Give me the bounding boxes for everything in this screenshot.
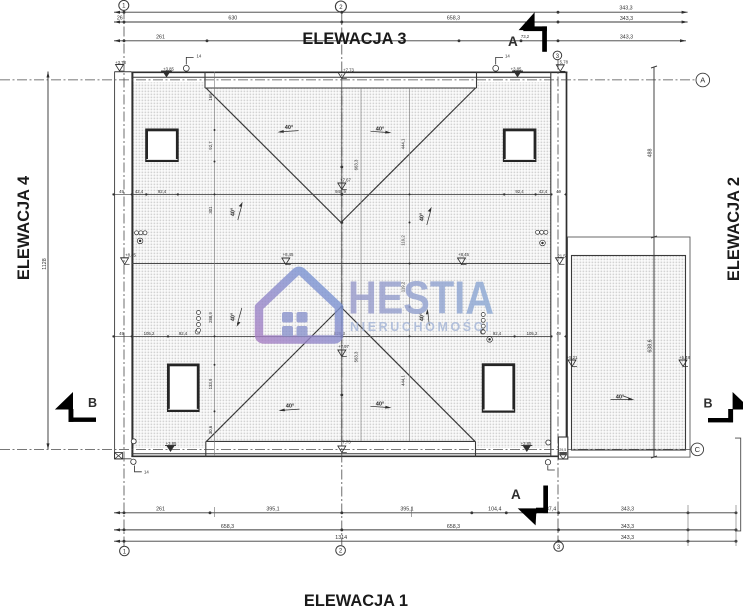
svg-text:288,9: 288,9	[208, 312, 213, 323]
svg-text:343,3: 343,3	[621, 524, 634, 530]
svg-text:ELEWACJA 4: ELEWACJA 4	[15, 175, 33, 280]
svg-text:1314: 1314	[335, 535, 347, 541]
svg-text:40°: 40°	[286, 404, 294, 410]
svg-text:A: A	[511, 487, 521, 502]
svg-text:+3,85: +3,85	[511, 66, 522, 71]
svg-text:+7,97: +7,97	[338, 344, 349, 349]
svg-text:658,3: 658,3	[221, 524, 234, 530]
svg-text:+7,73: +7,73	[343, 68, 354, 73]
svg-text:343,3: 343,3	[621, 507, 634, 513]
svg-text:948,9: 948,9	[335, 189, 346, 194]
svg-text:+3,85: +3,85	[163, 66, 174, 71]
svg-text:73,2: 73,2	[521, 34, 530, 39]
svg-text:630: 630	[228, 16, 237, 22]
svg-text:261: 261	[156, 507, 165, 513]
svg-text:B: B	[704, 397, 713, 411]
svg-text:92,4: 92,4	[158, 189, 167, 194]
svg-text:92,4: 92,4	[179, 331, 188, 336]
svg-text:92,7: 92,7	[208, 141, 213, 150]
svg-text:49: 49	[556, 331, 561, 336]
svg-text:92,4: 92,4	[493, 331, 502, 336]
svg-text:343,3: 343,3	[621, 535, 634, 541]
svg-text:104,4: 104,4	[488, 507, 501, 513]
svg-text:C: C	[695, 445, 701, 454]
svg-text:169: 169	[208, 93, 213, 101]
svg-text:42,4: 42,4	[539, 189, 548, 194]
svg-text:7,73: 7,73	[342, 440, 351, 445]
svg-text:444,1: 444,1	[401, 375, 406, 386]
svg-text:301: 301	[208, 206, 213, 214]
svg-text:5,78: 5,78	[560, 60, 569, 65]
svg-text:133,9: 133,9	[208, 378, 213, 389]
svg-text:40°: 40°	[231, 208, 237, 216]
svg-text:92,4: 92,4	[515, 189, 524, 194]
svg-text:40°: 40°	[231, 313, 237, 321]
svg-text:A: A	[700, 76, 705, 85]
svg-text:21,5: 21,5	[557, 254, 566, 259]
svg-text:343,3: 343,3	[620, 35, 633, 41]
svg-text:29,5: 29,5	[559, 448, 566, 452]
svg-text:+8,45: +8,45	[458, 252, 469, 257]
svg-text:343,3: 343,3	[620, 16, 633, 22]
svg-text:40°: 40°	[420, 213, 426, 221]
svg-text:395,1: 395,1	[266, 507, 279, 513]
svg-text:ELEWACJA 1: ELEWACJA 1	[304, 592, 408, 610]
svg-text:NIERUCHOMOŚCI: NIERUCHOMOŚCI	[350, 319, 491, 334]
svg-text:563,3: 563,3	[354, 351, 359, 362]
svg-text:+5,21: +5,21	[567, 355, 578, 360]
svg-text:261: 261	[156, 35, 165, 41]
svg-text:488: 488	[648, 149, 654, 158]
svg-text:658,3: 658,3	[447, 524, 460, 530]
svg-text:1128: 1128	[42, 258, 48, 269]
svg-text:658,3: 658,3	[447, 16, 460, 22]
svg-text:+3,78: +3,78	[115, 60, 126, 65]
svg-text:A: A	[508, 34, 518, 49]
svg-text:26: 26	[117, 16, 123, 22]
svg-text:+5,48: +5,48	[679, 355, 690, 360]
svg-text:49: 49	[119, 189, 124, 194]
svg-text:ELEWACJA 2: ELEWACJA 2	[725, 177, 743, 281]
svg-text:+3,85: +3,85	[521, 441, 532, 446]
svg-text:30,6: 30,6	[208, 425, 213, 434]
svg-text:14: 14	[505, 54, 510, 59]
svg-text:638,6: 638,6	[648, 339, 654, 352]
svg-text:105,2: 105,2	[144, 331, 155, 336]
svg-text:+8,45: +8,45	[125, 252, 136, 257]
svg-text:49: 49	[556, 189, 561, 194]
svg-text:119,2: 119,2	[401, 235, 406, 246]
svg-text:14: 14	[197, 54, 202, 59]
svg-text:444,1: 444,1	[401, 138, 406, 149]
svg-text:105,2: 105,2	[527, 331, 538, 336]
svg-text:663,3: 663,3	[354, 159, 359, 170]
svg-text:14: 14	[144, 470, 149, 475]
svg-text:+8,45: +8,45	[283, 252, 294, 257]
svg-text:40°: 40°	[285, 125, 293, 131]
svg-text:+7,67: +7,67	[340, 177, 351, 182]
svg-text:343,3: 343,3	[619, 6, 632, 12]
svg-text:42,4: 42,4	[135, 189, 144, 194]
svg-text:49: 49	[119, 331, 124, 336]
svg-text:B: B	[88, 396, 97, 410]
svg-text:ELEWACJA 3: ELEWACJA 3	[302, 30, 406, 48]
svg-text:+3,85: +3,85	[166, 441, 177, 446]
svg-text:HESTIA: HESTIA	[348, 272, 494, 324]
